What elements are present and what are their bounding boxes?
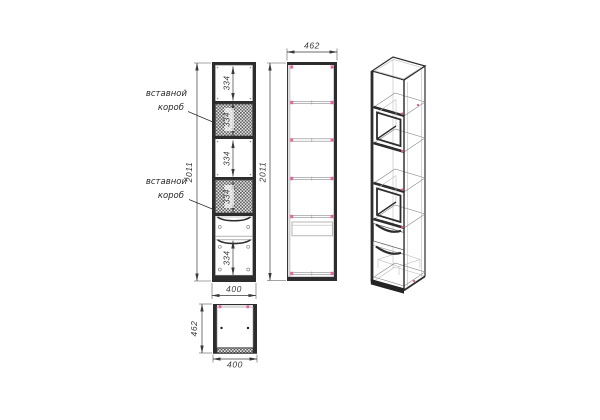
side-view: 462 2011 (258, 41, 338, 282)
front-right-panel (253, 62, 256, 282)
dim-front-section-bottom: 334 (223, 251, 232, 266)
upper-box-top-rail (215, 101, 253, 104)
plan-body (213, 304, 257, 353)
side-bottom-edge (287, 277, 337, 281)
plan-left-panel (213, 304, 217, 353)
side-drawer-profile (292, 222, 333, 236)
dim-side-depth: 462 (304, 41, 320, 51)
callout-upper-leader (188, 112, 214, 123)
upper-box-bottom-rail (215, 136, 253, 139)
front-carcass (212, 62, 256, 282)
iso-top-inner (375, 60, 422, 79)
lower-box-top-rail (215, 177, 253, 180)
dim-front-section-top: 334 (223, 76, 232, 91)
iso-insert-box-lower (377, 176, 401, 223)
iso-insert-box-upper (377, 100, 401, 147)
callout-upper-line1: вставной (146, 89, 188, 99)
front-left-panel (212, 62, 215, 282)
plan-view: 462 400 (189, 304, 257, 370)
dim-side-height: 2011 (258, 162, 268, 184)
front-top-panel (212, 62, 256, 65)
dim-front-lower-box: 334 (223, 189, 232, 204)
callout-lower-line1: вставной (146, 177, 188, 187)
drawing-sheet: 334 334 334 334 334 2011 400 вставной ко… (0, 0, 600, 420)
front-view: 334 334 334 334 334 2011 400 (184, 62, 256, 299)
callout-lower-line2: короб (158, 191, 184, 201)
side-top-edge (287, 62, 337, 65)
drawing-canvas: 334 334 334 334 334 2011 400 вставной ко… (0, 0, 600, 420)
callout-labels: вставной короб вставной короб (146, 89, 214, 210)
callout-upper-line2: короб (158, 103, 184, 113)
iso-view (371, 57, 425, 294)
plan-right-panel (253, 304, 257, 353)
iso-side-panel (404, 66, 425, 290)
iso-top-panel (372, 57, 425, 80)
dim-front-width: 400 (226, 284, 242, 294)
front-body (212, 62, 256, 282)
dim-front-upper-box: 334 (223, 112, 232, 127)
side-front-edge (334, 62, 337, 281)
iso-base-side-edge (404, 277, 425, 291)
plan-front-panel-section (217, 348, 253, 353)
side-body (287, 62, 337, 281)
dim-plan-width: 400 (227, 360, 243, 370)
plan-fitting-dot (220, 327, 222, 329)
dim-front-section-middle: 334 (223, 151, 232, 166)
dim-plan-depth: 462 (189, 321, 199, 337)
front-bottom-panel (212, 276, 256, 283)
callout-lower-leader (189, 200, 214, 210)
lower-box-bottom-rail (215, 213, 253, 216)
plan-fitting-dot (247, 327, 249, 329)
